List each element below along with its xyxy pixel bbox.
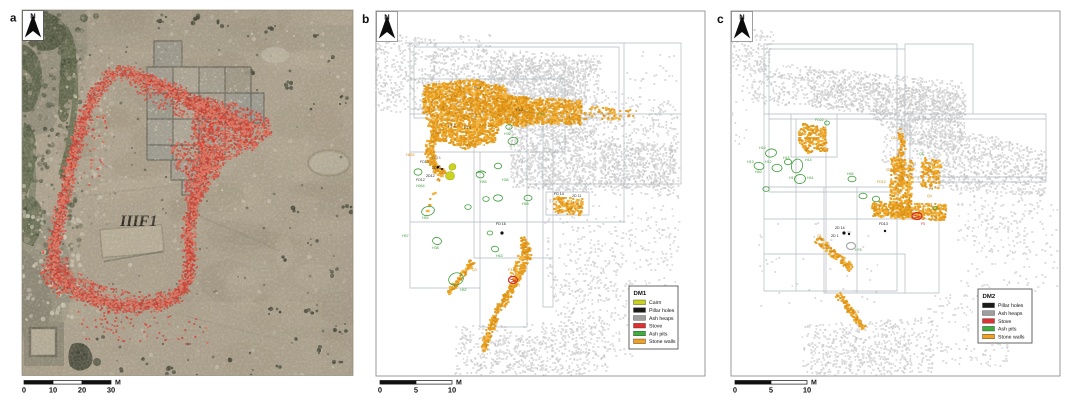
svg-text:2D 14: 2D 14 [835, 226, 845, 230]
svg-text:H76: H76 [855, 248, 862, 252]
svg-text:Q3: Q3 [472, 268, 477, 272]
svg-text:DM2: DM2 [983, 293, 996, 300]
svg-text:H36: H36 [502, 178, 509, 182]
svg-text:30: 30 [107, 386, 115, 395]
svg-text:Q4: Q4 [847, 262, 852, 266]
svg-text:Q1: Q1 [817, 234, 822, 238]
svg-text:2D 1: 2D 1 [831, 234, 839, 238]
svg-text:F1-3: F1-3 [474, 86, 481, 90]
svg-text:10: 10 [49, 386, 57, 395]
svg-text:FD22: FD22 [815, 118, 824, 122]
svg-text:H79: H79 [538, 112, 545, 116]
svg-text:2D15: 2D15 [432, 156, 441, 160]
svg-text:2D 11: 2D 11 [572, 194, 581, 198]
svg-text:Stove: Stove [649, 324, 662, 330]
svg-text:5: 5 [769, 386, 773, 395]
svg-text:b: b [362, 12, 369, 26]
svg-text:5: 5 [414, 386, 418, 395]
svg-text:10: 10 [448, 386, 456, 395]
svg-text:H10: H10 [759, 146, 766, 150]
svg-text:Pillar holes: Pillar holes [998, 303, 1024, 309]
svg-text:H62: H62 [460, 288, 467, 292]
svg-text:H66: H66 [847, 172, 854, 176]
svg-text:H55: H55 [480, 180, 487, 184]
svg-text:F3: F3 [508, 268, 512, 272]
svg-text:M: M [115, 379, 121, 386]
svg-text:FD 14: FD 14 [554, 192, 564, 196]
svg-text:H12: H12 [765, 160, 772, 164]
svg-text:0: 0 [22, 386, 26, 395]
svg-text:H41: H41 [807, 176, 814, 180]
svg-text:c: c [717, 12, 724, 26]
svg-text:FD13: FD13 [420, 160, 429, 164]
svg-text:Q6: Q6 [919, 152, 924, 156]
svg-text:Stove: Stove [998, 319, 1011, 325]
svg-text:M: M [811, 379, 817, 386]
svg-text:a: a [10, 13, 17, 25]
svg-text:FD 16: FD 16 [496, 222, 506, 226]
svg-text:Q1: Q1 [891, 136, 896, 140]
svg-text:Q1: Q1 [855, 310, 860, 314]
svg-text:FD12: FD12 [416, 178, 425, 182]
svg-text:Cairn: Cairn [649, 300, 662, 306]
svg-text:F7: F7 [516, 284, 520, 288]
svg-text:Pillar holes: Pillar holes [649, 308, 675, 314]
svg-text:2D12: 2D12 [886, 168, 895, 172]
svg-text:Stone walls: Stone walls [998, 334, 1025, 340]
svg-text:F1-1: F1-1 [448, 124, 455, 128]
svg-text:H40: H40 [755, 170, 762, 174]
svg-text:H052: H052 [406, 153, 415, 157]
svg-text:F5: F5 [921, 222, 925, 226]
svg-text:H70: H70 [504, 132, 511, 136]
svg-text:F1-2: F1-2 [516, 108, 523, 112]
svg-text:2D13: 2D13 [432, 166, 441, 170]
svg-text:H054: H054 [416, 184, 425, 188]
svg-text:10: 10 [803, 386, 811, 395]
svg-text:Ash pits: Ash pits [649, 331, 668, 337]
svg-text:H63: H63 [496, 254, 503, 258]
svg-text:Q4: Q4 [927, 194, 932, 198]
svg-text:Ash heaps: Ash heaps [998, 311, 1023, 317]
svg-text:H15: H15 [783, 156, 790, 160]
svg-text:H17: H17 [789, 176, 796, 180]
svg-text:0: 0 [733, 386, 737, 395]
svg-text:M: M [456, 379, 462, 386]
svg-text:H13: H13 [747, 160, 754, 164]
svg-text:DM1: DM1 [634, 290, 647, 297]
svg-text:0: 0 [378, 386, 382, 395]
svg-text:H14: H14 [805, 158, 812, 162]
svg-text:Q1: Q1 [799, 132, 804, 136]
svg-text:Ash heaps: Ash heaps [649, 316, 674, 322]
svg-text:H38: H38 [432, 246, 439, 250]
svg-text:H54: H54 [422, 216, 429, 220]
svg-text:2D12: 2D12 [426, 174, 435, 178]
svg-text:F1-5: F1-5 [464, 126, 471, 130]
svg-text:Q5: Q5 [494, 310, 499, 314]
svg-text:Ash pits: Ash pits [998, 327, 1017, 333]
svg-text:H57: H57 [402, 234, 409, 238]
svg-text:Stone walls: Stone walls [649, 339, 676, 345]
svg-text:FD12: FD12 [877, 180, 886, 184]
svg-text:H58: H58 [522, 202, 529, 206]
svg-text:FD13: FD13 [879, 222, 888, 226]
svg-text:F2: F2 [524, 244, 528, 248]
svg-text:20: 20 [78, 386, 86, 395]
